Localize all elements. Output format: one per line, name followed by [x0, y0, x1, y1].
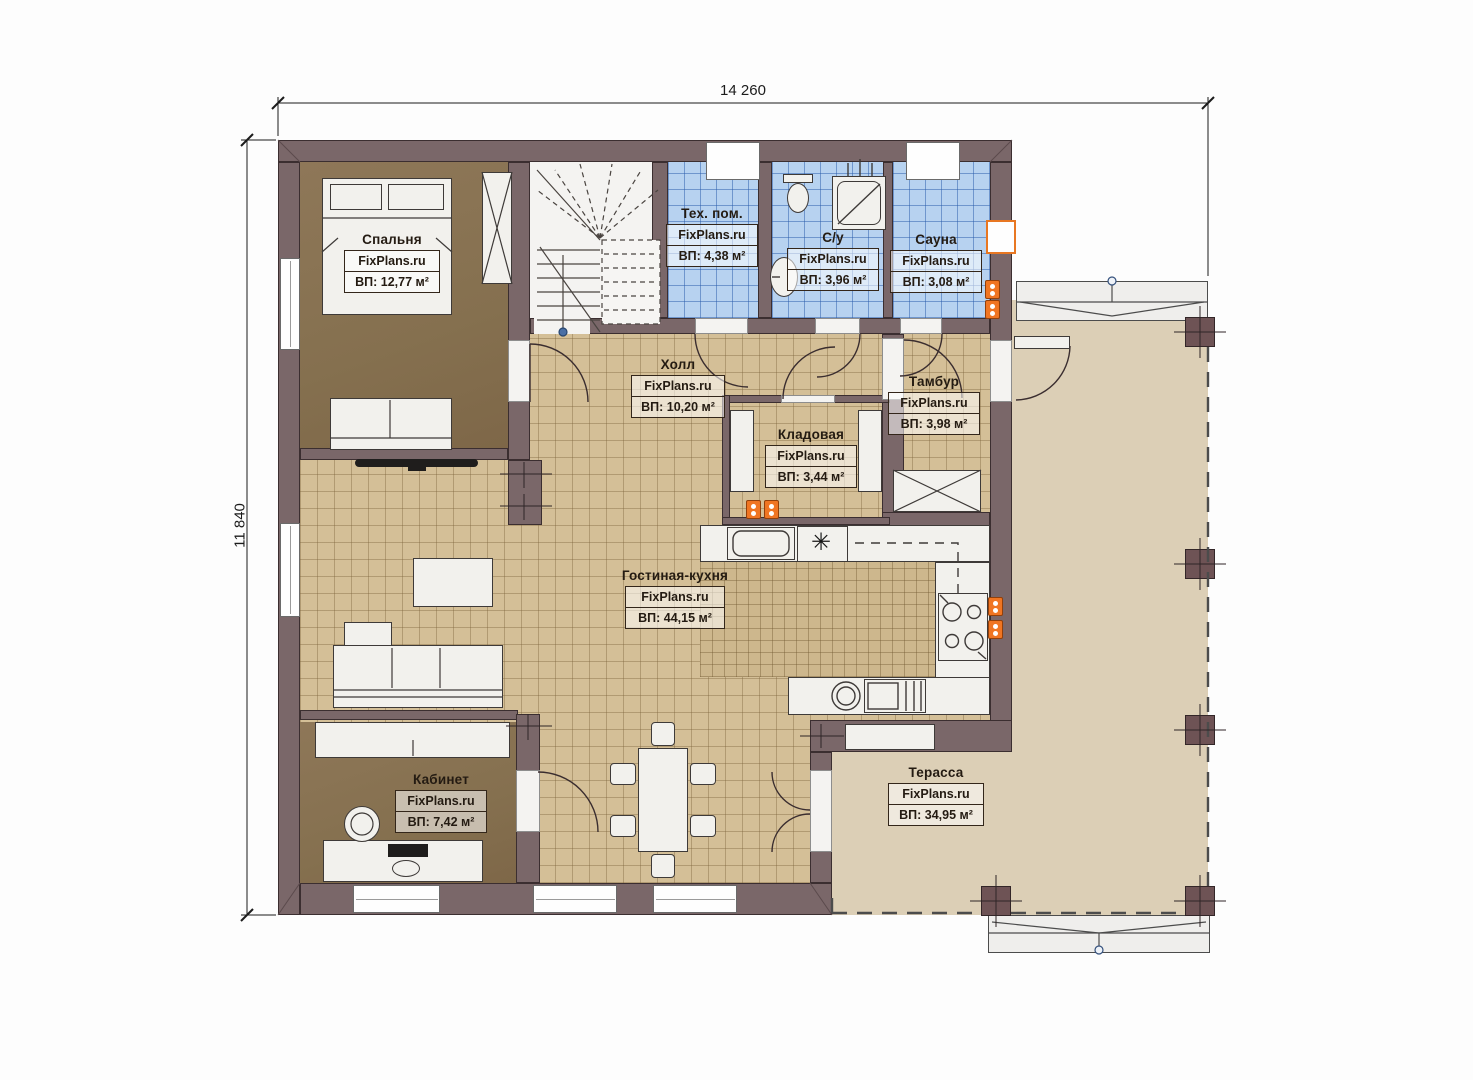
room-label-office: Кабинет FixPlans.ru ВП: 7,42 м²: [391, 772, 491, 833]
vent-shaft-top-1: [706, 142, 760, 180]
tambour-closet: [893, 470, 981, 512]
room-area: ВП: 3,96 м²: [788, 269, 878, 290]
room-label-bathroom: С/у FixPlans.ru ВП: 3,96 м²: [783, 230, 883, 291]
watermark-fixplans: FixPlans.ru: [345, 251, 439, 271]
wall-outer-top: [278, 140, 1012, 162]
office-plant-pot: [344, 806, 380, 842]
dining-chair: [610, 763, 636, 785]
bedroom-sofa: [330, 398, 452, 450]
floor-stairs: [530, 162, 652, 318]
wardrobe: [482, 172, 512, 284]
toilet-bowl: [787, 183, 809, 213]
shower-tray-inner: [837, 181, 881, 225]
room-info-box: FixPlans.ru ВП: 3,98 м²: [888, 392, 980, 435]
window-living-left: [280, 523, 300, 617]
wall-tambour-bottom: [882, 512, 990, 526]
room-name: Кабинет: [391, 772, 491, 787]
wall-office-top: [300, 710, 518, 720]
tv-stand: [408, 466, 426, 471]
coffee-table: [413, 558, 493, 607]
vent-shaft-top-2: [906, 142, 960, 180]
opening-stairs-hall: [534, 318, 590, 334]
watermark-fixplans: FixPlans.ru: [632, 376, 724, 396]
room-area: ВП: 3,08 м²: [891, 271, 981, 292]
room-area: ВП: 34,95 м²: [889, 804, 983, 825]
watermark-fixplans: FixPlans.ru: [889, 393, 979, 413]
power-socket-icon: [988, 620, 1003, 639]
dining-chair: [610, 815, 636, 837]
terrace-column: [981, 886, 1011, 916]
kitchen-dishwasher: [864, 679, 926, 713]
power-socket-icon: [985, 280, 1000, 299]
door-opening-sauna: [900, 318, 942, 334]
watermark-fixplans: FixPlans.ru: [788, 249, 878, 269]
room-name: Тамбур: [884, 374, 984, 389]
pantry-shelf: [730, 410, 754, 492]
pantry-shelf: [858, 410, 882, 492]
room-name: Терасса: [886, 765, 986, 780]
room-info-box: FixPlans.ru ВП: 4,38 м²: [666, 224, 758, 267]
room-name: С/у: [783, 230, 883, 245]
room-info-box: FixPlans.ru ВП: 3,08 м²: [890, 250, 982, 293]
room-label-living: Гостиная-кухня FixPlans.ru ВП: 44,15 м²: [605, 568, 745, 629]
room-info-box: FixPlans.ru ВП: 3,96 м²: [787, 248, 879, 291]
dimension-height-label: 11 840: [232, 481, 249, 571]
power-socket-icon: [746, 500, 761, 519]
fridge-snowflake-icon: ✳: [811, 531, 831, 555]
floor-plan: ✳: [0, 0, 1473, 1080]
room-name: Тех. пом.: [662, 206, 762, 221]
wall-hall-pier: [508, 460, 542, 525]
door-opening-entrance: [990, 340, 1012, 402]
office-shelf: [315, 722, 510, 758]
room-label-tech: Тех. пом. FixPlans.ru ВП: 4,38 м²: [662, 206, 762, 267]
door-opening-office: [516, 770, 540, 832]
room-area: ВП: 7,42 м²: [396, 811, 486, 832]
watermark-fixplans: FixPlans.ru: [667, 225, 757, 245]
terrace-column: [1185, 715, 1215, 745]
door-opening-tech: [695, 318, 748, 334]
dining-chair: [651, 854, 675, 878]
office-chair: [392, 860, 420, 877]
entrance-door-leaf: [1014, 336, 1070, 349]
room-label-tambour: Тамбур FixPlans.ru ВП: 3,98 м²: [884, 374, 984, 435]
terrace-steps-top: [1016, 281, 1208, 321]
room-info-box: FixPlans.ru ВП: 10,20 м²: [631, 375, 725, 418]
floor-terrace-right: [1012, 300, 1208, 915]
watermark-fixplans: FixPlans.ru: [766, 446, 856, 466]
watermark-fixplans: FixPlans.ru: [396, 791, 486, 811]
terrace-column: [1185, 549, 1215, 579]
power-socket-icon: [764, 500, 779, 519]
room-name: Спальня: [332, 232, 452, 247]
room-name: Кладовая: [761, 427, 861, 442]
door-opening-bathroom: [815, 318, 860, 334]
room-info-box: FixPlans.ru ВП: 44,15 м²: [625, 586, 725, 629]
power-socket-icon: [988, 597, 1003, 616]
corner-sofa-base: [333, 645, 503, 708]
room-area: ВП: 12,77 м²: [345, 271, 439, 292]
window-office-bottom: [353, 885, 440, 913]
dimension-width-label: 14 260: [278, 82, 1208, 99]
room-label-hall: Холл FixPlans.ru ВП: 10,20 м²: [628, 357, 728, 418]
room-info-box: FixPlans.ru ВП: 34,95 м²: [888, 783, 984, 826]
room-name: Сауна: [886, 232, 986, 247]
room-name: Холл: [628, 357, 728, 372]
room-area: ВП: 3,44 м²: [766, 466, 856, 487]
room-area: ВП: 3,98 м²: [889, 413, 979, 434]
room-area: ВП: 4,38 м²: [667, 245, 757, 266]
watermark-fixplans: FixPlans.ru: [626, 587, 724, 607]
door-opening-terrace: [810, 770, 832, 852]
office-monitor: [388, 844, 428, 857]
kitchen-sink-unit: [727, 527, 795, 560]
window-bedroom-left: [280, 258, 300, 350]
room-label-pantry: Кладовая FixPlans.ru ВП: 3,44 м²: [761, 427, 861, 488]
terrace-column: [1185, 317, 1215, 347]
room-area: ВП: 10,20 м²: [632, 396, 724, 417]
terrace-column: [1185, 886, 1215, 916]
room-name: Гостиная-кухня: [605, 568, 745, 583]
room-info-box: FixPlans.ru ВП: 3,44 м²: [765, 445, 857, 488]
door-opening-pantry: [781, 395, 835, 403]
dining-table: [638, 748, 688, 852]
power-socket-icon: [985, 300, 1000, 319]
room-area: ВП: 44,15 м²: [626, 607, 724, 628]
window-dining-bottom-1: [533, 885, 617, 913]
room-label-bedroom: Спальня FixPlans.ru ВП: 12,77 м²: [332, 232, 452, 293]
door-opening-bedroom: [508, 340, 530, 402]
dining-chair: [690, 815, 716, 837]
room-label-terrace: Терасса FixPlans.ru ВП: 34,95 м²: [886, 765, 986, 826]
room-info-box: FixPlans.ru ВП: 7,42 м²: [395, 790, 487, 833]
bed-pillow: [330, 184, 382, 210]
sauna-window: [986, 220, 1016, 254]
dining-chair: [651, 722, 675, 746]
dining-chair: [690, 763, 716, 785]
watermark-fixplans: FixPlans.ru: [889, 784, 983, 804]
toilet-tank: [783, 174, 813, 183]
terrace-steps-bottom: [988, 915, 1210, 953]
room-label-sauna: Сауна FixPlans.ru ВП: 3,08 м²: [886, 232, 986, 293]
kitchen-stove: [938, 593, 988, 661]
watermark-fixplans: FixPlans.ru: [891, 251, 981, 271]
kitchen-low-cabinet: [845, 724, 935, 750]
bed-pillow: [388, 184, 444, 210]
window-dining-bottom-2: [653, 885, 737, 913]
room-info-box: FixPlans.ru ВП: 12,77 м²: [344, 250, 440, 293]
